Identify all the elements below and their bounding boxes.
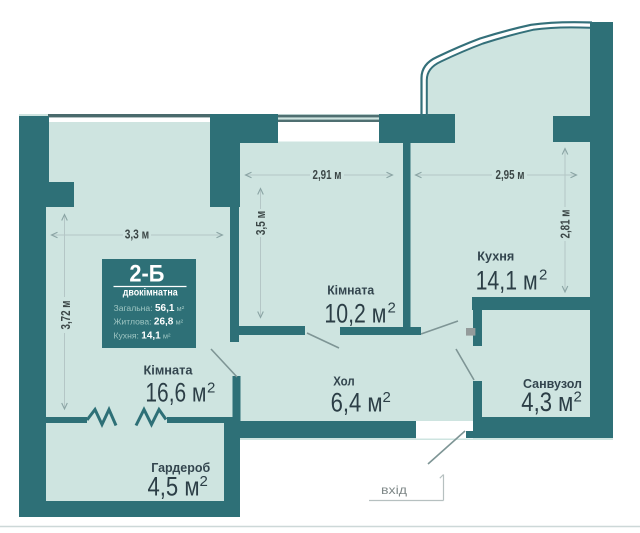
svg-text:2,91 м: 2,91 м — [313, 168, 342, 182]
svg-text:2,81 м: 2,81 м — [559, 210, 573, 239]
svg-text:Житлова: 26,8 м²: Житлова: 26,8 м² — [114, 317, 184, 328]
svg-text:4,5 м: 4,5 м — [148, 472, 200, 502]
svg-text:2: 2 — [200, 473, 208, 490]
svg-text:2,95 м: 2,95 м — [496, 168, 525, 182]
svg-text:Кухня: 14,1 м²: Кухня: 14,1 м² — [114, 331, 171, 342]
svg-text:10,2 м: 10,2 м — [324, 299, 386, 329]
svg-text:2: 2 — [207, 380, 215, 397]
svg-text:16,6 м: 16,6 м — [145, 378, 206, 408]
svg-text:Кімната: Кімната — [144, 363, 194, 378]
svg-text:6,4 м: 6,4 м — [331, 388, 383, 418]
svg-text:3,3 м: 3,3 м — [125, 228, 150, 242]
svg-text:2: 2 — [574, 389, 582, 406]
svg-text:14,1 м: 14,1 м — [476, 265, 538, 295]
svg-text:2: 2 — [539, 267, 547, 284]
svg-text:4,3 м: 4,3 м — [521, 387, 573, 417]
svg-text:2: 2 — [388, 300, 396, 317]
svg-text:2-Б: 2-Б — [129, 261, 164, 288]
svg-text:Кухня: Кухня — [477, 249, 514, 264]
svg-text:3,72 м: 3,72 м — [59, 301, 73, 330]
svg-text:вхід: вхід — [381, 483, 407, 497]
svg-text:двокімнатна: двокімнатна — [123, 288, 179, 299]
svg-text:Хол: Хол — [333, 374, 355, 389]
svg-text:3,5 м: 3,5 м — [254, 211, 268, 236]
svg-text:Загальна: 56,1 м²: Загальна: 56,1 м² — [114, 303, 185, 314]
svg-text:Кімната: Кімната — [327, 283, 375, 298]
svg-text:2: 2 — [383, 389, 391, 406]
